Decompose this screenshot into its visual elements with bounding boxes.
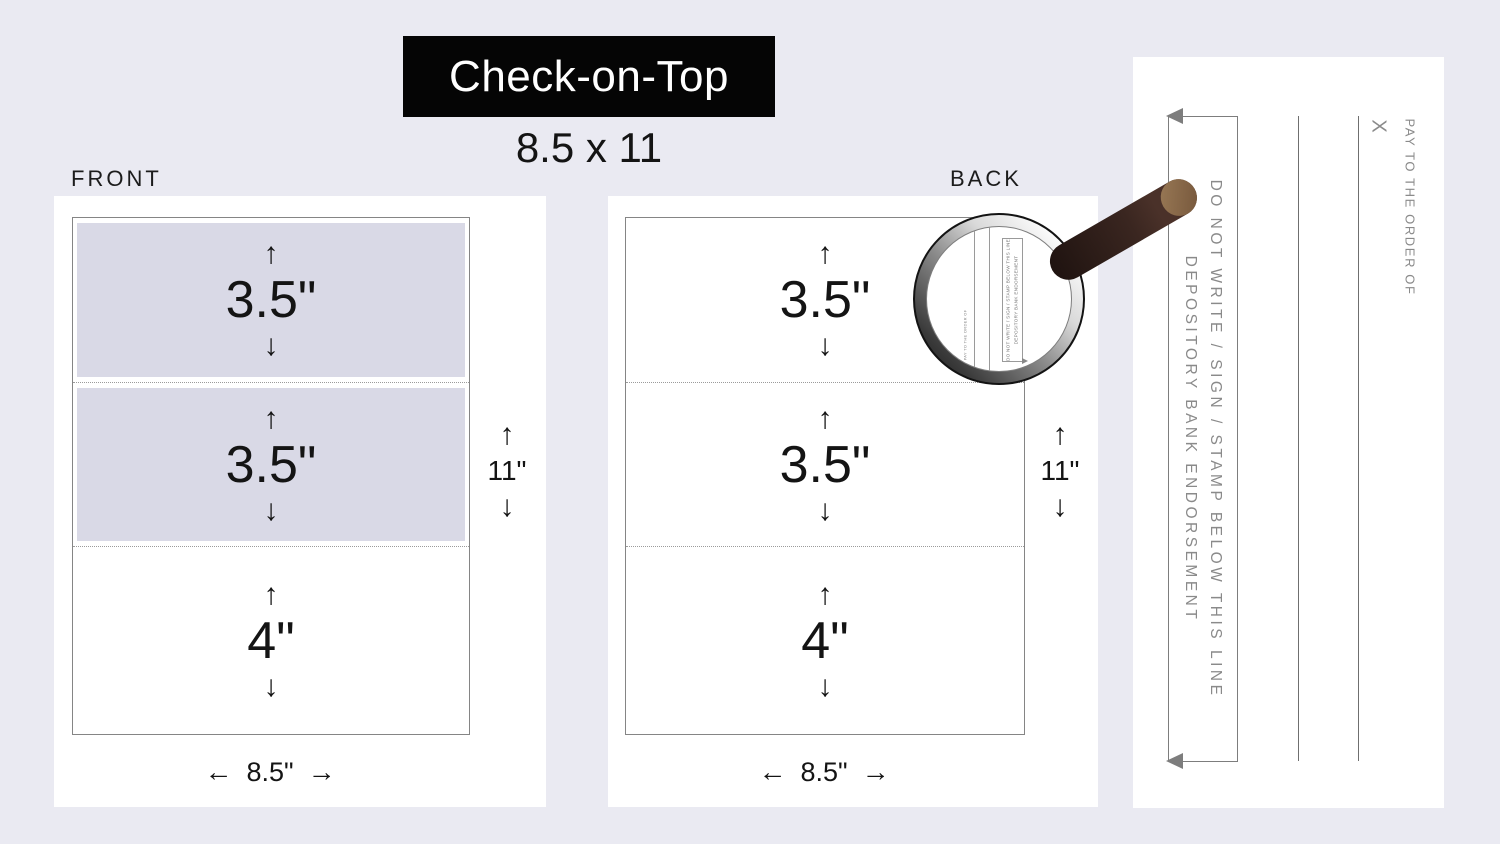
- front-section-2-height-label: 3.5": [226, 436, 317, 494]
- back-section-2-height-label: 3.5": [780, 436, 871, 494]
- front-paper-sheet: ↑ 3.5" ↓ ↑ 3.5" ↓ ↑ 4" ↓: [72, 217, 470, 735]
- mini-endorsement-line-1: DO NOT WRITE / SIGN / STAMP BELOW THIS L…: [1005, 239, 1013, 361]
- arrow-up-icon: ↑: [818, 404, 833, 434]
- front-panel: ↑ 3.5" ↓ ↑ 3.5" ↓ ↑ 4" ↓: [54, 196, 546, 807]
- x-mark: X: [1367, 119, 1390, 132]
- arrow-right-icon: [1022, 358, 1028, 364]
- back-width-dimension: ← 8.5" →: [625, 752, 1023, 792]
- front-section-3-dimension: ↑ 4" ↓: [73, 547, 469, 734]
- arrow-right-icon: →: [862, 758, 890, 786]
- back-height-label: 11": [1040, 455, 1079, 487]
- arrow-up-icon: ↑: [1053, 420, 1068, 450]
- arrow-up-icon: ↑: [818, 580, 833, 610]
- mini-pay-to-label: PAY TO THE ORDER OF: [963, 310, 968, 361]
- front-width-label: 8.5": [246, 757, 293, 788]
- arrow-left-icon: ←: [758, 758, 786, 786]
- front-section-2-dimension: ↑ 3.5" ↓: [73, 383, 469, 546]
- arrow-left-icon: [1166, 753, 1183, 769]
- front-width-dimension: ← 8.5" →: [72, 752, 468, 792]
- signature-line: [1358, 116, 1359, 761]
- arrow-down-icon: ↓: [818, 331, 833, 361]
- back-section-3-height-label: 4": [801, 612, 848, 670]
- front-check-section-3: ↑ 4" ↓: [73, 546, 469, 734]
- back-height-dimension: ↑ 11" ↓: [1033, 420, 1087, 522]
- endorsement-line-1: DO NOT WRITE / SIGN / STAMP BELOW THIS L…: [1203, 180, 1228, 699]
- arrow-up-icon: ↑: [264, 404, 279, 434]
- page-background: Check-on-Top 8.5 x 11 FRONT BACK ↑ 3.5" …: [0, 0, 1500, 844]
- arrow-down-icon: ↓: [818, 672, 833, 702]
- arrow-down-icon: ↓: [264, 496, 279, 526]
- front-label: FRONT: [71, 166, 162, 192]
- arrow-down-icon: ↓: [264, 672, 279, 702]
- arrow-right-icon: →: [308, 758, 336, 786]
- front-height-label: 11": [487, 455, 526, 487]
- pay-to-label: PAY TO THE ORDER OF: [1403, 118, 1418, 295]
- front-section-1-height-label: 3.5": [226, 271, 317, 329]
- mini-signature-line: [989, 227, 990, 372]
- arrow-down-icon: ↓: [500, 492, 515, 522]
- subtitle-text: 8.5 x 11: [403, 124, 775, 172]
- title-text: Check-on-Top: [449, 52, 729, 102]
- back-label: BACK: [950, 166, 1022, 192]
- front-check-section-2: ↑ 3.5" ↓: [73, 382, 469, 546]
- back-section-1-height-label: 3.5": [780, 271, 871, 329]
- arrow-left-icon: ←: [204, 758, 232, 786]
- front-height-dimension: ↑ 11" ↓: [480, 420, 534, 522]
- endorsement-text: DO NOT WRITE / SIGN / STAMP BELOW THIS L…: [1178, 180, 1228, 699]
- arrow-up-icon: ↑: [500, 420, 515, 450]
- back-check-section-2: ↑ 3.5" ↓: [626, 382, 1024, 546]
- back-width-label: 8.5": [800, 757, 847, 788]
- front-section-3-height-label: 4": [247, 612, 294, 670]
- back-section-3-dimension: ↑ 4" ↓: [626, 547, 1024, 734]
- back-section-2-dimension: ↑ 3.5" ↓: [626, 383, 1024, 546]
- mini-endorsement-text: DO NOT WRITE / SIGN / STAMP BELOW THIS L…: [1005, 239, 1020, 361]
- mini-signature-line: [974, 227, 975, 372]
- arrow-down-icon: ↓: [1053, 492, 1068, 522]
- front-section-1-dimension: ↑ 3.5" ↓: [73, 218, 469, 382]
- arrow-down-icon: ↓: [818, 496, 833, 526]
- front-check-section-1: ↑ 3.5" ↓: [73, 218, 469, 382]
- arrow-up-icon: ↑: [818, 239, 833, 269]
- mini-endorsement-line-2: DEPOSITORY BANK ENDORSEMENT: [1012, 239, 1020, 361]
- arrow-left-icon: [1166, 108, 1183, 124]
- arrow-up-icon: ↑: [264, 239, 279, 269]
- arrow-up-icon: ↑: [264, 580, 279, 610]
- back-check-section-3: ↑ 4" ↓: [626, 546, 1024, 734]
- endorsement-line-2: DEPOSITORY BANK ENDORSEMENT: [1178, 180, 1203, 699]
- magnifier-lens: DO NOT WRITE / SIGN / STAMP BELOW THIS L…: [926, 226, 1072, 372]
- check-back-panel: DO NOT WRITE / SIGN / STAMP BELOW THIS L…: [1133, 57, 1444, 808]
- title-banner: Check-on-Top: [403, 36, 775, 117]
- arrow-down-icon: ↓: [264, 331, 279, 361]
- signature-line: [1298, 116, 1299, 761]
